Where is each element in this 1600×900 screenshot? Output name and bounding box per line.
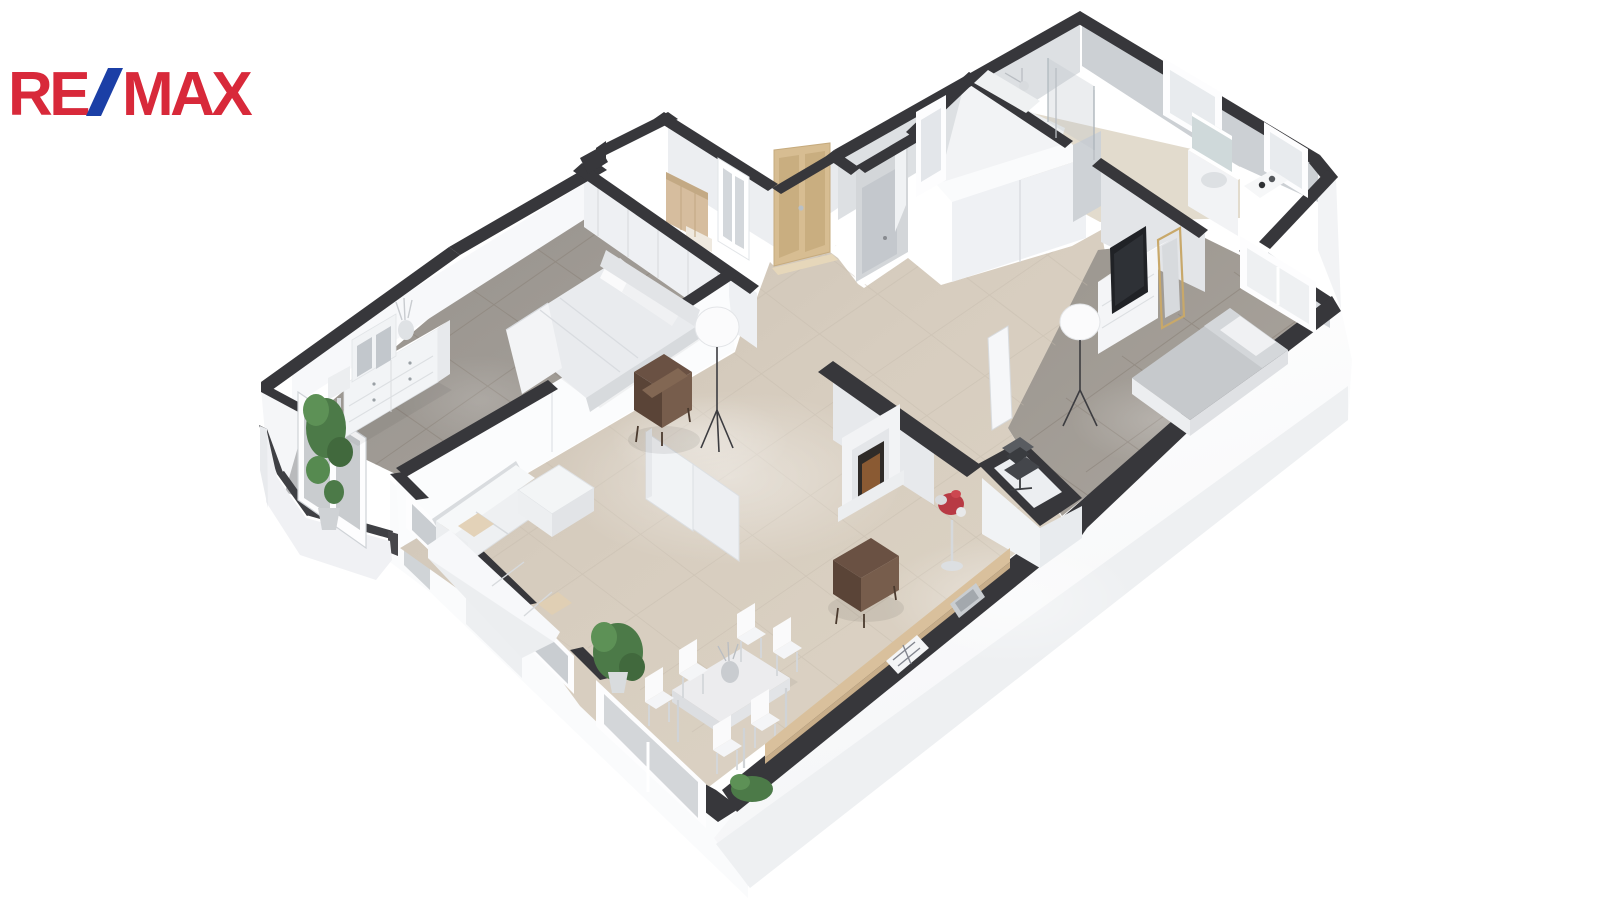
svg-text:RE: RE xyxy=(8,60,88,129)
svg-text:MAX: MAX xyxy=(122,60,252,129)
